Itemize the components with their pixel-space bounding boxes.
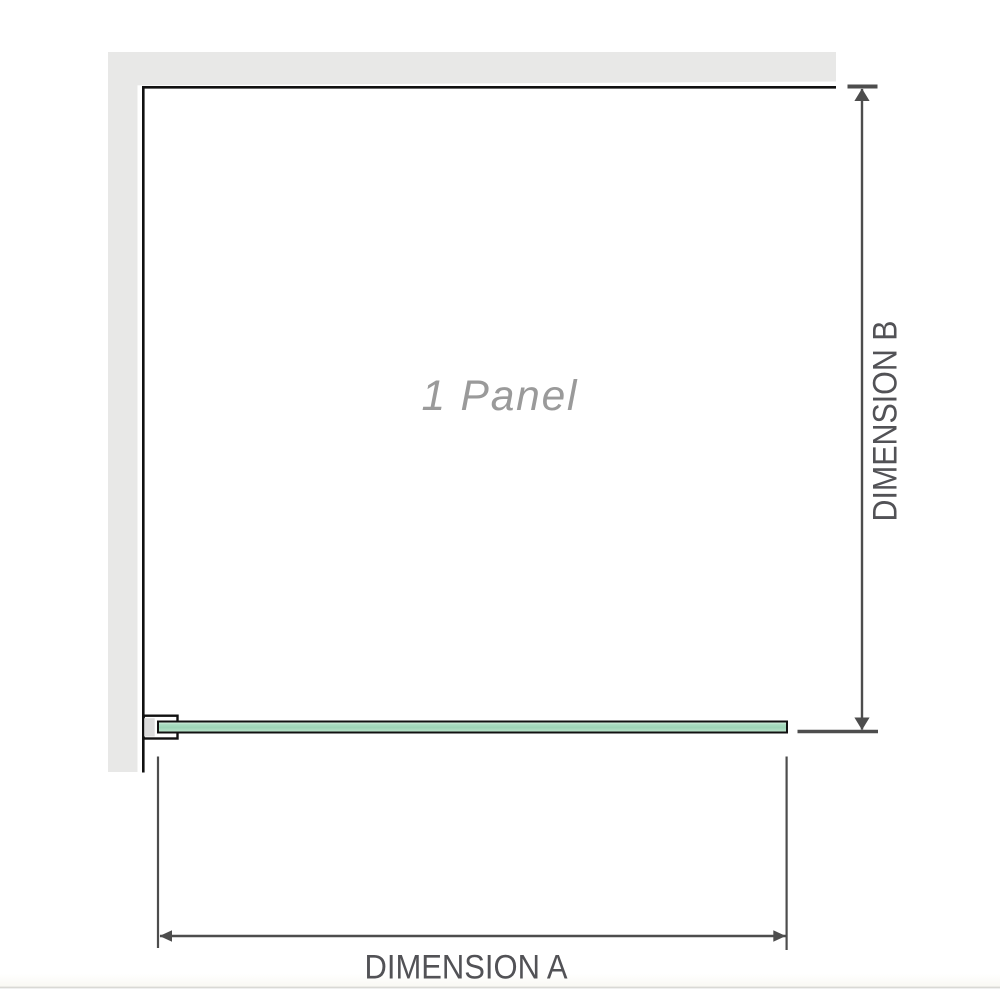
svg-text:1 Panel: 1 Panel <box>422 373 579 420</box>
svg-text:DIMENSION B: DIMENSION B <box>867 321 905 522</box>
svg-text:DIMENSION A: DIMENSION A <box>365 949 568 987</box>
